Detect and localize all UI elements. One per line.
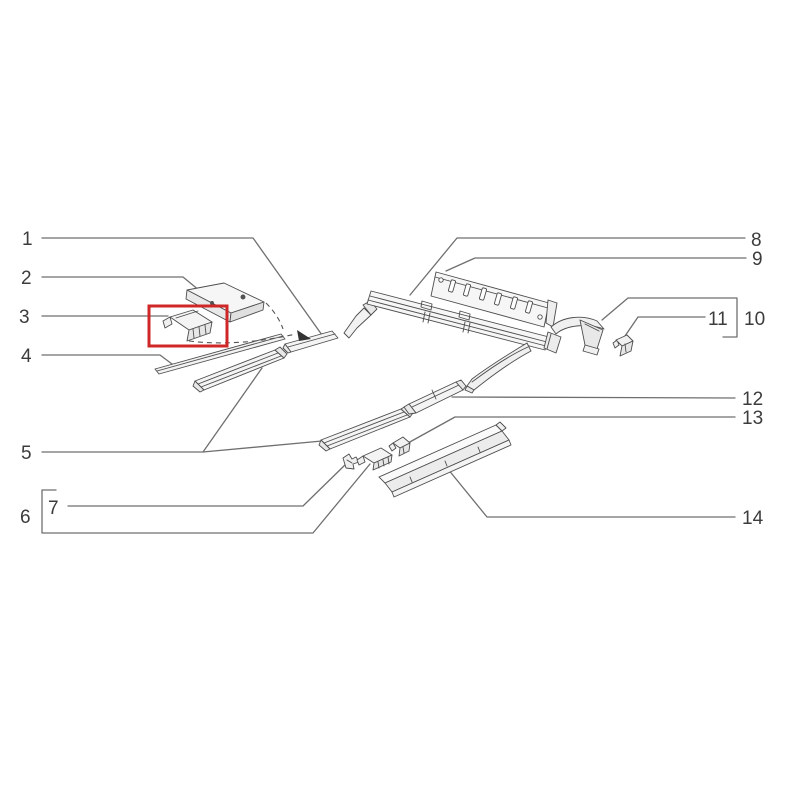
part-13-clip xyxy=(389,437,410,456)
part-11-clip xyxy=(613,335,633,356)
callout-label-6: 6 xyxy=(20,507,31,528)
leader-7 xyxy=(68,463,347,506)
part-6-bracket xyxy=(357,448,392,470)
callout-label-9: 9 xyxy=(752,249,763,270)
parts-diagram-canvas: 1 2 3 4 5 6 7 8 9 10 11 12 13 14 xyxy=(0,0,800,800)
callout-label-1: 1 xyxy=(22,229,33,250)
parts-diagram-page: 1 2 3 4 5 6 7 8 9 10 11 12 13 14 xyxy=(0,0,800,800)
callout-label-12: 12 xyxy=(742,389,763,410)
callout-label-5: 5 xyxy=(21,443,32,464)
leader-6-bracket xyxy=(42,464,370,533)
part-5-rail-upper xyxy=(193,347,287,392)
leader-11 xyxy=(625,317,705,336)
leader-14 xyxy=(443,463,735,517)
leader-5b xyxy=(203,441,322,452)
leader-5a xyxy=(42,368,262,452)
callout-label-3: 3 xyxy=(19,307,30,328)
leader-9 xyxy=(446,258,746,271)
callout-label-7: 7 xyxy=(48,498,59,519)
callout-label-11: 11 xyxy=(708,309,728,330)
leader-4 xyxy=(42,355,172,364)
callout-label-10: 10 xyxy=(744,309,765,330)
leader-2 xyxy=(42,277,200,291)
callout-label-14: 14 xyxy=(742,508,764,529)
dashed-arc xyxy=(266,303,283,329)
part-14-sill-panel xyxy=(379,422,511,497)
leader-12 xyxy=(452,397,735,398)
callout-label-8: 8 xyxy=(751,230,762,251)
part-1-rail xyxy=(283,331,338,353)
part-7-clip xyxy=(343,454,359,469)
callout-label-4: 4 xyxy=(21,346,32,367)
leader-13 xyxy=(408,417,735,443)
part-3-bracket xyxy=(163,310,212,341)
callout-label-13: 13 xyxy=(742,408,763,429)
callout-label-2: 2 xyxy=(21,268,32,289)
